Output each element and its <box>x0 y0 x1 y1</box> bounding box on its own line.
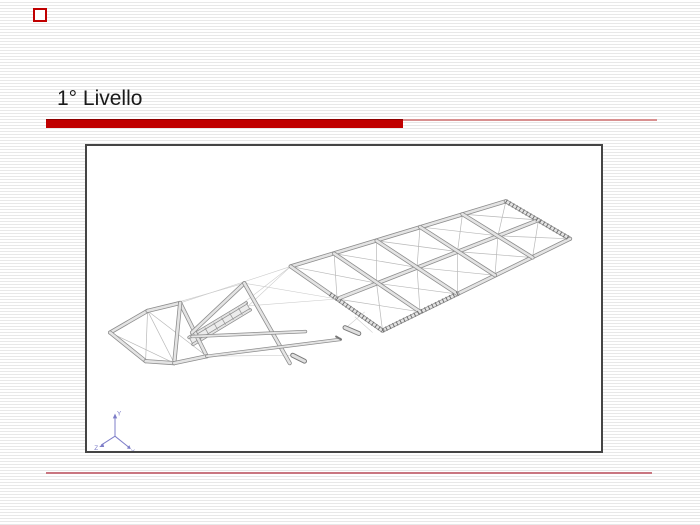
grid-cross-bracing <box>291 201 570 330</box>
main-grid-beams <box>291 201 570 330</box>
structural-model-drawing: Y Z X <box>87 146 601 451</box>
axis-triad: Y Z X <box>94 410 136 451</box>
footer-divider-line <box>46 472 652 474</box>
slide: 1° Livello <box>0 0 700 525</box>
slide-title: 1° Livello <box>57 86 142 112</box>
model-figure-frame: Y Z X <box>85 144 603 453</box>
title-bullet-square-icon <box>33 8 47 22</box>
axis-label-x: X <box>131 449 136 451</box>
title-underline-bar <box>46 119 403 128</box>
axis-label-y: Y <box>117 410 122 417</box>
axis-label-z: Z <box>94 445 98 451</box>
